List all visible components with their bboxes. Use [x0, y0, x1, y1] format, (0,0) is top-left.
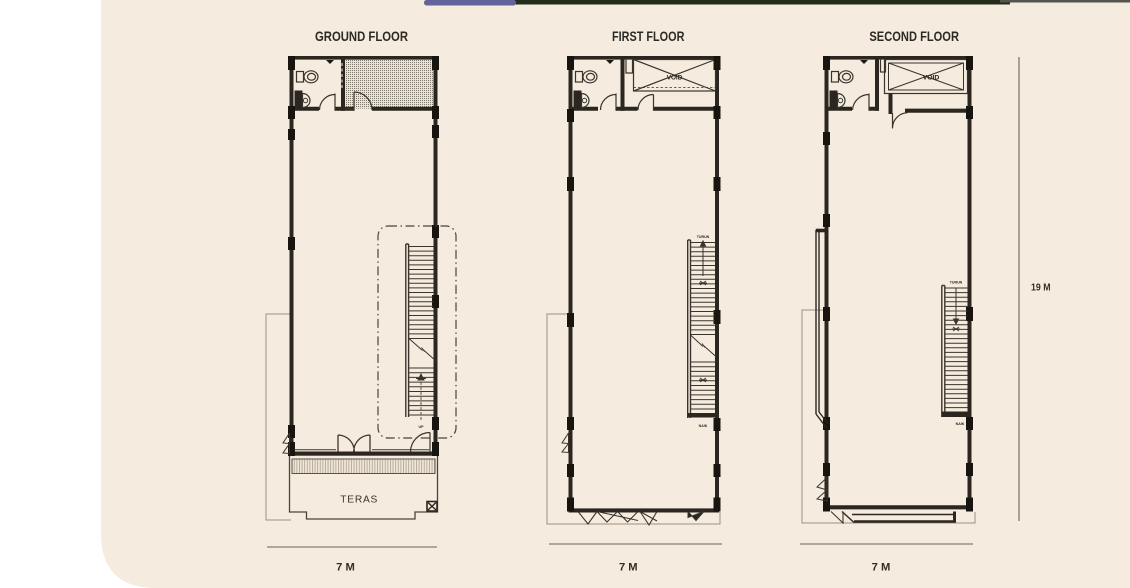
svg-text:7 M: 7 M [619, 562, 638, 574]
svg-text:SECOND FLOOR: SECOND FLOOR [869, 29, 959, 44]
svg-text:UP: UP [419, 425, 425, 429]
svg-text:NAIK: NAIK [699, 424, 708, 428]
svg-text:VOID: VOID [923, 75, 940, 82]
svg-text:TERAS: TERAS [340, 494, 380, 505]
svg-text:TURUN: TURUN [950, 281, 963, 285]
svg-text:7 M: 7 M [872, 562, 891, 574]
svg-text:7 M: 7 M [336, 562, 355, 574]
svg-text:19 M: 19 M [1031, 282, 1051, 293]
svg-text:FIRST FLOOR: FIRST FLOOR [612, 29, 685, 44]
svg-text:TURUN: TURUN [697, 235, 710, 239]
svg-text:NAIK: NAIK [956, 422, 965, 426]
svg-text:GROUND FLOOR: GROUND FLOOR [315, 29, 408, 44]
svg-text:VOID: VOID [667, 75, 683, 82]
